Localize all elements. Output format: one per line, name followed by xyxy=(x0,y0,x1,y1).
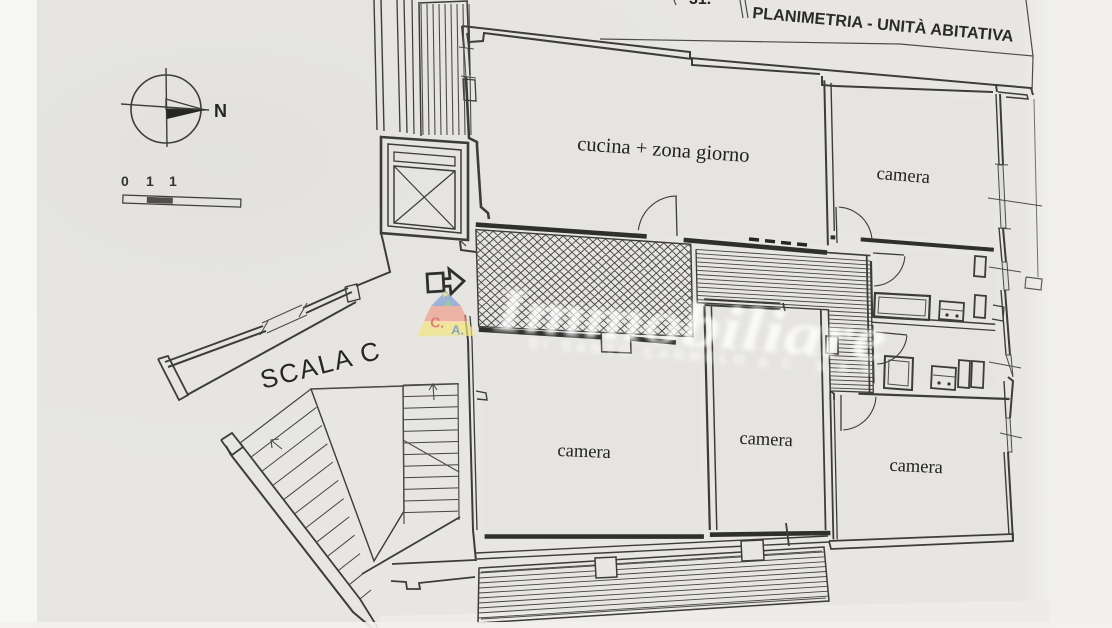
svg-text:31.: 31. xyxy=(689,0,711,8)
svg-text:A.: A. xyxy=(451,322,465,338)
svg-text:N: N xyxy=(214,101,227,121)
svg-text:camera: camera xyxy=(557,441,611,463)
svg-text:C.: C. xyxy=(430,314,445,331)
svg-text:camera: camera xyxy=(889,456,943,478)
svg-text:camera: camera xyxy=(876,164,931,188)
svg-text:camera: camera xyxy=(739,429,793,451)
